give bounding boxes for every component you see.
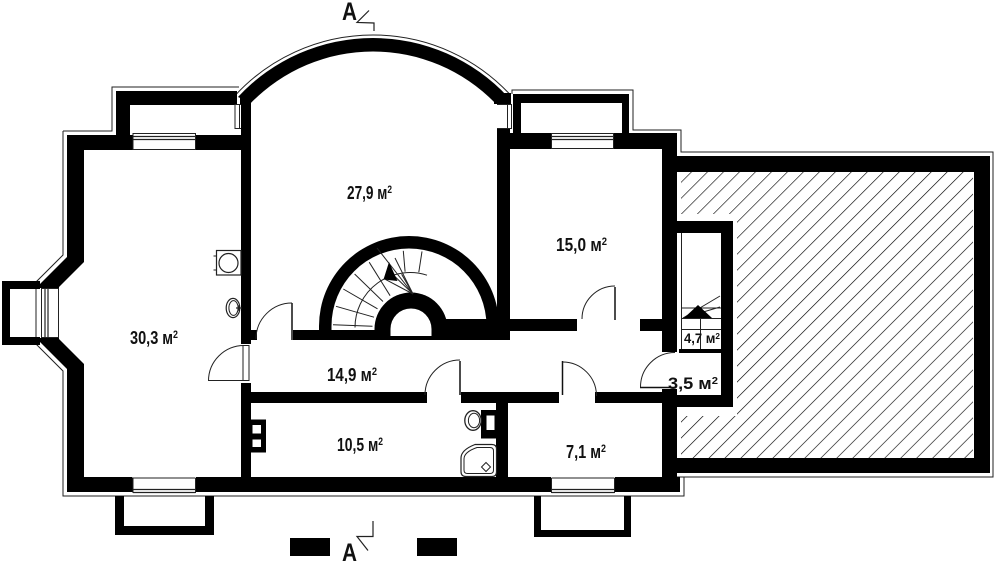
svg-text:A: A [342, 539, 357, 561]
svg-text:14,9 м2: 14,9 м2 [327, 365, 377, 385]
svg-text:4,7 м2: 4,7 м2 [684, 331, 720, 346]
svg-text:A: A [342, 0, 357, 26]
svg-text:3,5 м2: 3,5 м2 [668, 374, 718, 393]
svg-text:15,0 м2: 15,0 м2 [556, 235, 607, 255]
svg-text:7,1 м2: 7,1 м2 [566, 442, 606, 462]
svg-text:10,5 м2: 10,5 м2 [337, 435, 383, 455]
svg-text:30,3 м2: 30,3 м2 [130, 328, 178, 348]
svg-text:27,9 м2: 27,9 м2 [347, 183, 392, 203]
